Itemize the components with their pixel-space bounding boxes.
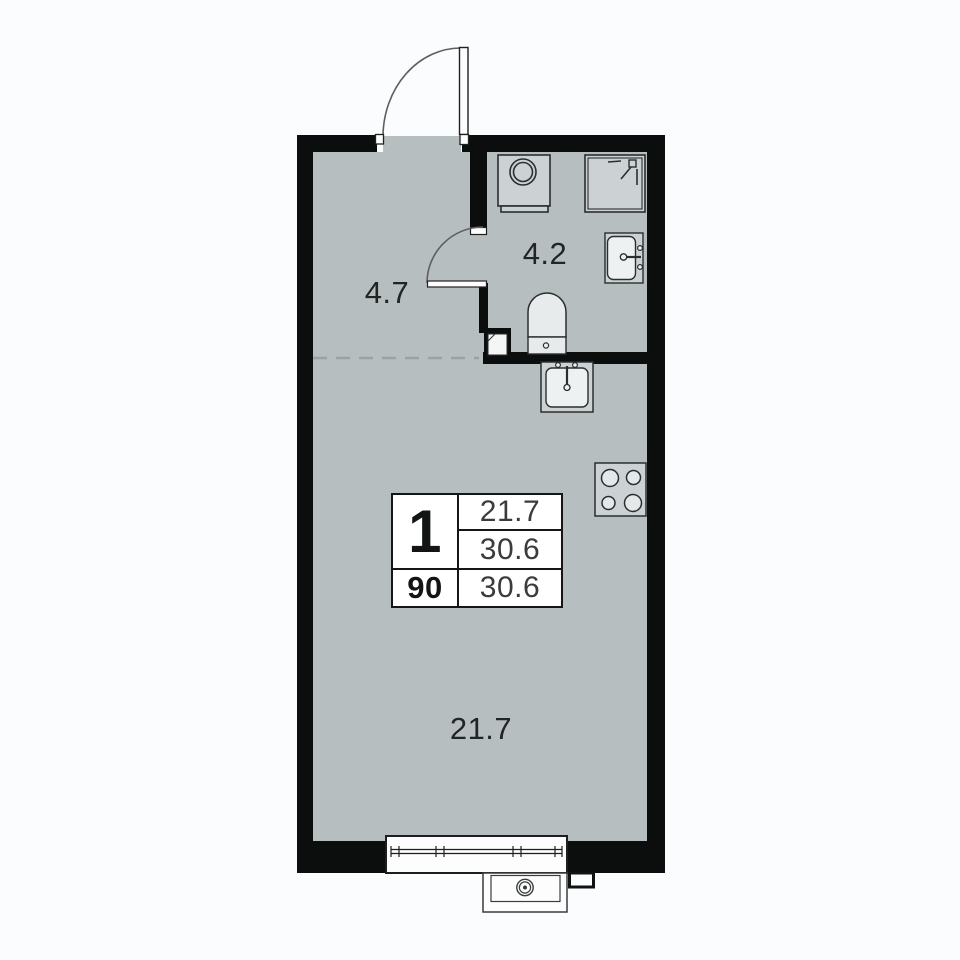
apartment-info-table: 1 21.7 30.6 90 30.6 bbox=[391, 493, 563, 608]
shower-icon bbox=[585, 155, 645, 212]
stove-icon bbox=[595, 463, 646, 516]
info-unit-number: 90 bbox=[393, 570, 459, 606]
bathroom-area-label: 4.2 bbox=[523, 236, 568, 272]
duct-shaft-icon bbox=[488, 334, 507, 355]
hallway-area-label: 4.7 bbox=[365, 275, 410, 311]
info-area-row-1: 21.7 bbox=[459, 495, 561, 531]
wall-left bbox=[297, 135, 313, 873]
living-room-area-label: 21.7 bbox=[450, 711, 512, 747]
wall-right bbox=[647, 135, 665, 873]
bathroom-sink-icon bbox=[605, 233, 643, 283]
window-icon bbox=[386, 836, 567, 873]
vent-box-icon bbox=[570, 873, 594, 887]
info-area-row-2: 30.6 bbox=[459, 531, 561, 570]
kitchen-sink-icon bbox=[541, 362, 593, 412]
wall-stub bbox=[479, 283, 488, 333]
entrance-door-icon bbox=[376, 48, 469, 145]
floor-plan-drawing bbox=[0, 0, 960, 960]
info-area-row-3: 30.6 bbox=[459, 570, 561, 606]
info-rooms-count: 1 bbox=[393, 495, 459, 570]
ac-unit-icon bbox=[483, 873, 567, 912]
wall-bathroom-divider bbox=[470, 152, 487, 228]
floor-plan: 4.7 4.2 21.7 1 21.7 30.6 90 30.6 bbox=[0, 0, 960, 960]
toilet-icon bbox=[528, 293, 566, 354]
washing-machine-icon bbox=[498, 155, 550, 212]
wall-top-right bbox=[462, 135, 665, 152]
